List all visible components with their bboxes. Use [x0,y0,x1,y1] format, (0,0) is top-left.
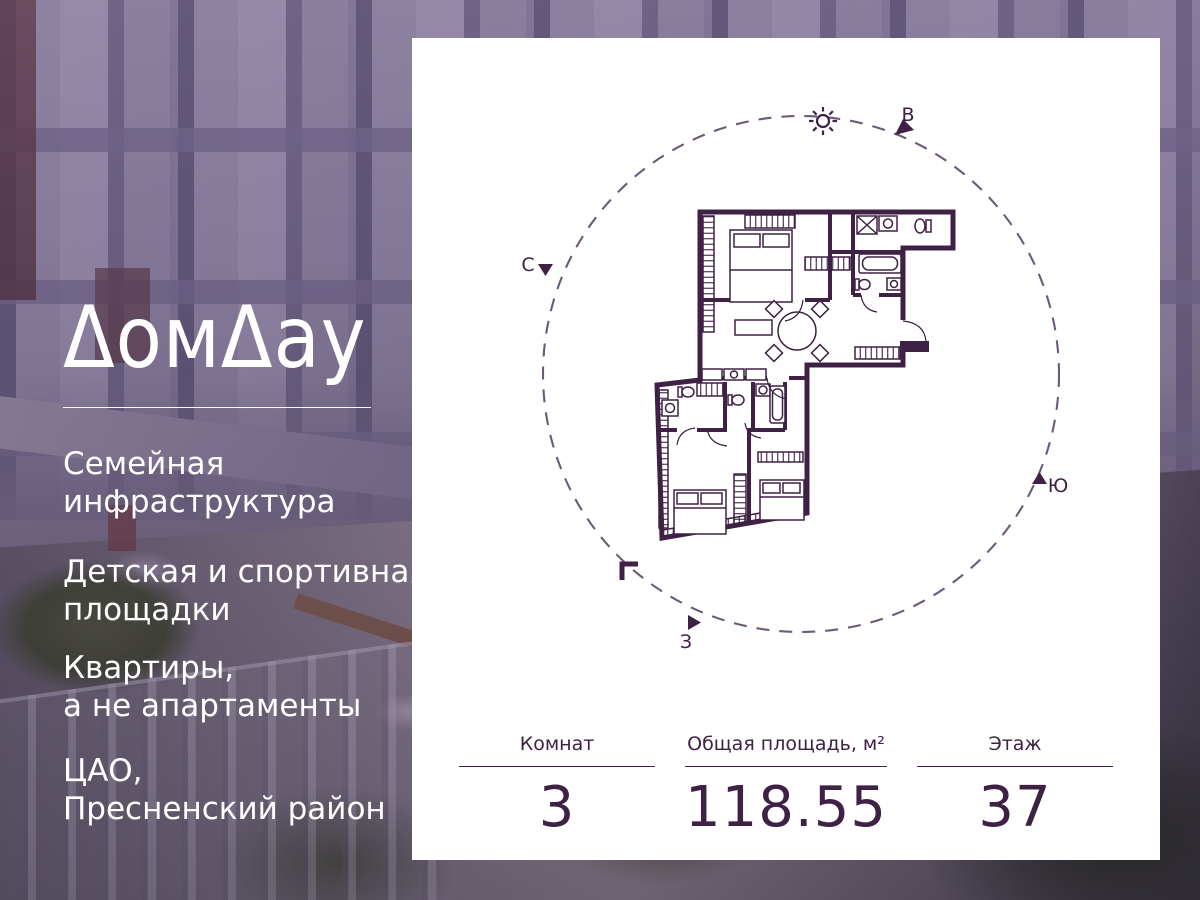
brand-logo: ΔомΔау [63,288,366,388]
bed-master [730,230,792,302]
compass-label-north: С [521,254,534,276]
dining-table [735,301,828,362]
west-marker-triangle [688,615,701,630]
compass-label-west: З [680,631,692,653]
stat-floor: Этаж 37 [917,733,1113,840]
feature-line: инфраструктура [63,484,336,520]
sun-icon [809,107,837,135]
feature-line: площадки [63,592,231,628]
stat-floor-label: Этаж [917,733,1113,767]
stat-rooms-label: Комнат [459,733,655,767]
stat-rooms: Комнат 3 [459,733,655,840]
divider-line [63,407,371,408]
stat-area-label: Общая площадь, м² [685,733,887,767]
north-marker-triangle [538,264,553,276]
feature-item: Семейная инфраструктура [63,446,336,522]
coffee-table [735,320,772,335]
feature-line: ЦАО, [63,753,143,789]
south-marker-triangle [1032,472,1047,484]
feature-item: Детская и спортивная площадки [63,554,428,630]
stat-area: Общая площадь, м² 118.55 [685,733,887,840]
feature-line: Пресненский район [63,791,386,827]
feature-line: а не апартаменты [63,688,361,724]
kitchen-counter [702,369,766,380]
bed-third [760,480,804,520]
stat-floor-value: 37 [917,767,1113,840]
stat-rooms-value: 3 [459,767,655,840]
stats-row: Комнат 3 Общая площадь, м² 118.55 Этаж 3… [459,733,1113,840]
floor-plan [622,212,953,580]
feature-item: Квартиры, а не апартаменты [63,650,361,726]
apartment-card[interactable]: В С Ю З [412,38,1160,860]
stat-area-value: 118.55 [685,767,887,840]
listing-banner: ΔомΔау Семейная инфраструктура Детская и… [0,0,1200,900]
compass-ring [543,116,1059,632]
feature-line: Детская и спортивная [63,554,428,590]
feature-line: Семейная [63,446,224,482]
feature-item: ЦАО, Пресненский район [63,753,386,829]
feature-line: Квартиры, [63,650,234,686]
compass-label-east: В [901,104,914,126]
bed-second [674,490,726,534]
compass-label-south: Ю [1048,475,1069,497]
